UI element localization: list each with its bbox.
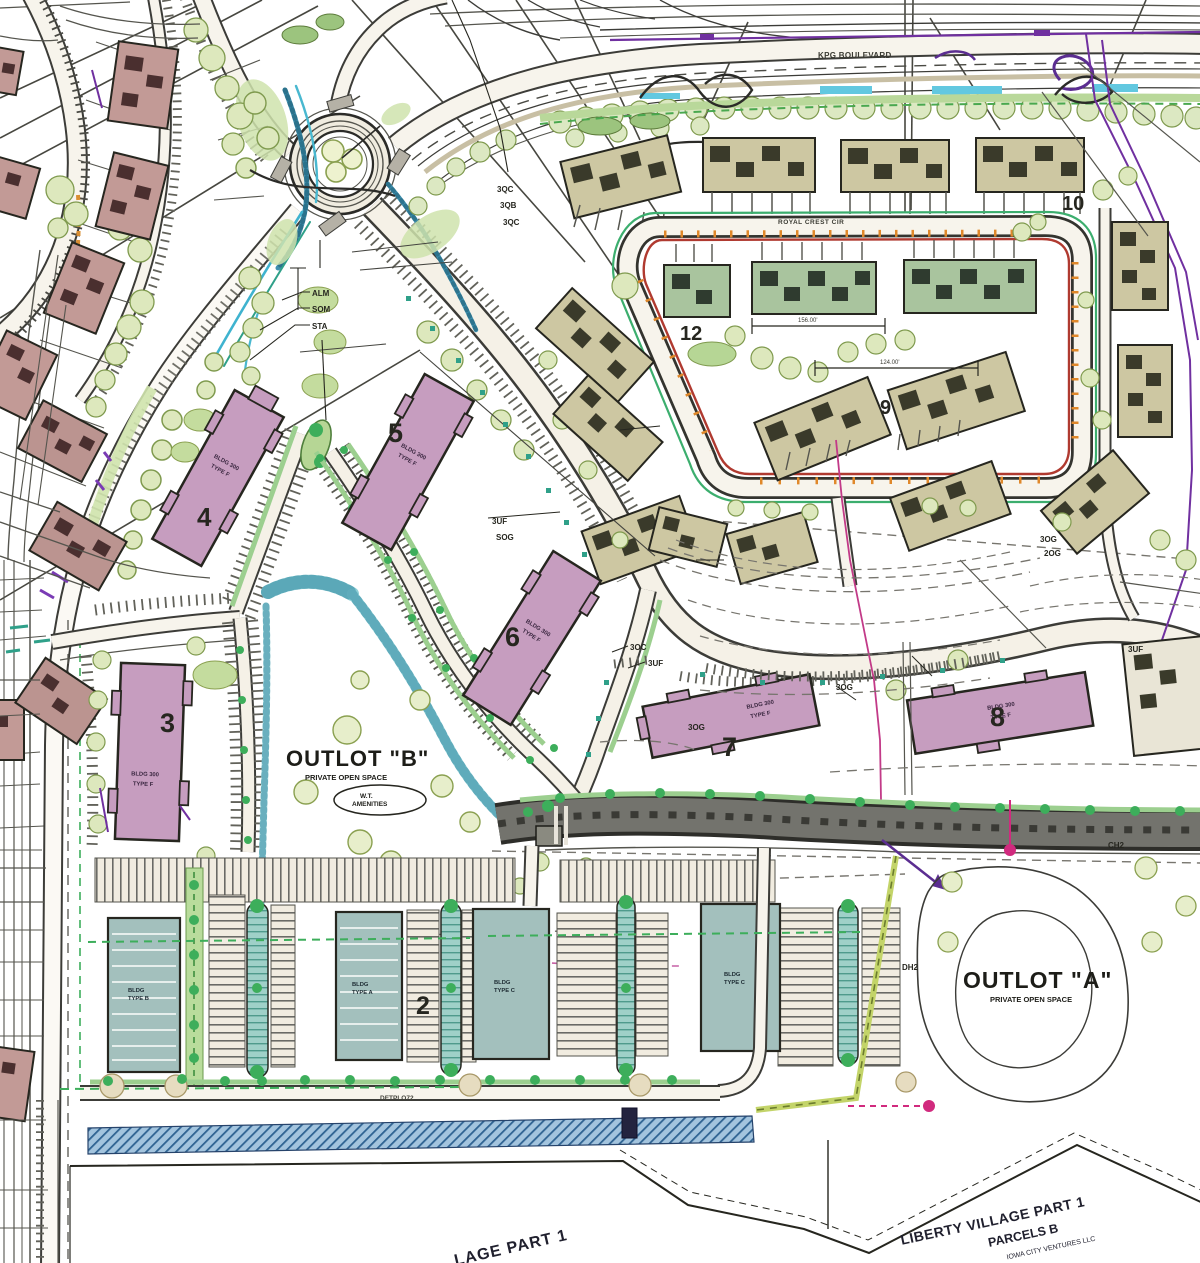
svg-text:3UF: 3UF xyxy=(1128,645,1143,654)
svg-text:PRIVATE OPEN SPACE: PRIVATE OPEN SPACE xyxy=(305,773,387,782)
svg-text:CH2: CH2 xyxy=(1108,841,1125,850)
svg-text:BLDG: BLDG xyxy=(352,982,369,988)
svg-text:DETPLO72: DETPLO72 xyxy=(380,1095,414,1102)
svg-text:STA: STA xyxy=(312,322,328,331)
svg-text:TYPE F: TYPE F xyxy=(133,781,154,788)
svg-text:SOM: SOM xyxy=(312,305,331,314)
svg-text:10: 10 xyxy=(1062,193,1084,215)
svg-text:3OC: 3OC xyxy=(630,643,647,652)
svg-text:ROYAL CREST CIR: ROYAL CREST CIR xyxy=(778,219,844,226)
svg-text:AMENITIES: AMENITIES xyxy=(352,801,388,808)
svg-text:156.00': 156.00' xyxy=(798,318,818,324)
svg-text:6: 6 xyxy=(505,622,520,652)
svg-text:KPG BOULEVARD: KPG BOULEVARD xyxy=(818,51,892,60)
svg-text:5: 5 xyxy=(388,418,403,448)
svg-text:BLDG: BLDG xyxy=(724,972,741,978)
svg-text:TYPE C: TYPE C xyxy=(724,980,746,986)
svg-text:3UF: 3UF xyxy=(648,659,663,668)
svg-text:3UF: 3UF xyxy=(492,517,507,526)
svg-text:PRIVATE OPEN SPACE: PRIVATE OPEN SPACE xyxy=(990,995,1072,1004)
svg-text:8: 8 xyxy=(990,702,1005,732)
svg-text:TYPE C: TYPE C xyxy=(494,988,516,994)
svg-text:W.T.: W.T. xyxy=(360,793,373,800)
svg-text:2: 2 xyxy=(416,992,430,1020)
svg-text:3OG: 3OG xyxy=(1040,535,1057,544)
svg-text:OUTLOT "B": OUTLOT "B" xyxy=(286,746,429,771)
svg-text:SOG: SOG xyxy=(496,533,514,542)
svg-text:DH2: DH2 xyxy=(902,963,919,972)
svg-text:12: 12 xyxy=(680,323,702,345)
svg-text:3QB: 3QB xyxy=(500,201,517,210)
svg-text:OUTLOT "A": OUTLOT "A" xyxy=(963,967,1112,993)
svg-text:BLDG 300: BLDG 300 xyxy=(131,771,159,778)
svg-text:TYPE A: TYPE A xyxy=(352,990,374,996)
svg-text:7: 7 xyxy=(722,732,737,762)
svg-text:4: 4 xyxy=(197,502,212,532)
svg-text:BLDG: BLDG xyxy=(128,988,145,994)
svg-text:2OG: 2OG xyxy=(1044,549,1061,558)
svg-text:3: 3 xyxy=(160,708,175,738)
svg-text:3OG: 3OG xyxy=(688,723,705,732)
svg-text:BLDG: BLDG xyxy=(494,980,511,986)
svg-text:TYPE B: TYPE B xyxy=(128,996,149,1002)
svg-text:3QC: 3QC xyxy=(503,218,520,227)
svg-text:3QC: 3QC xyxy=(497,185,514,194)
svg-text:124.00': 124.00' xyxy=(880,360,900,366)
svg-text:9: 9 xyxy=(880,397,891,419)
svg-text:ALM: ALM xyxy=(312,289,330,298)
